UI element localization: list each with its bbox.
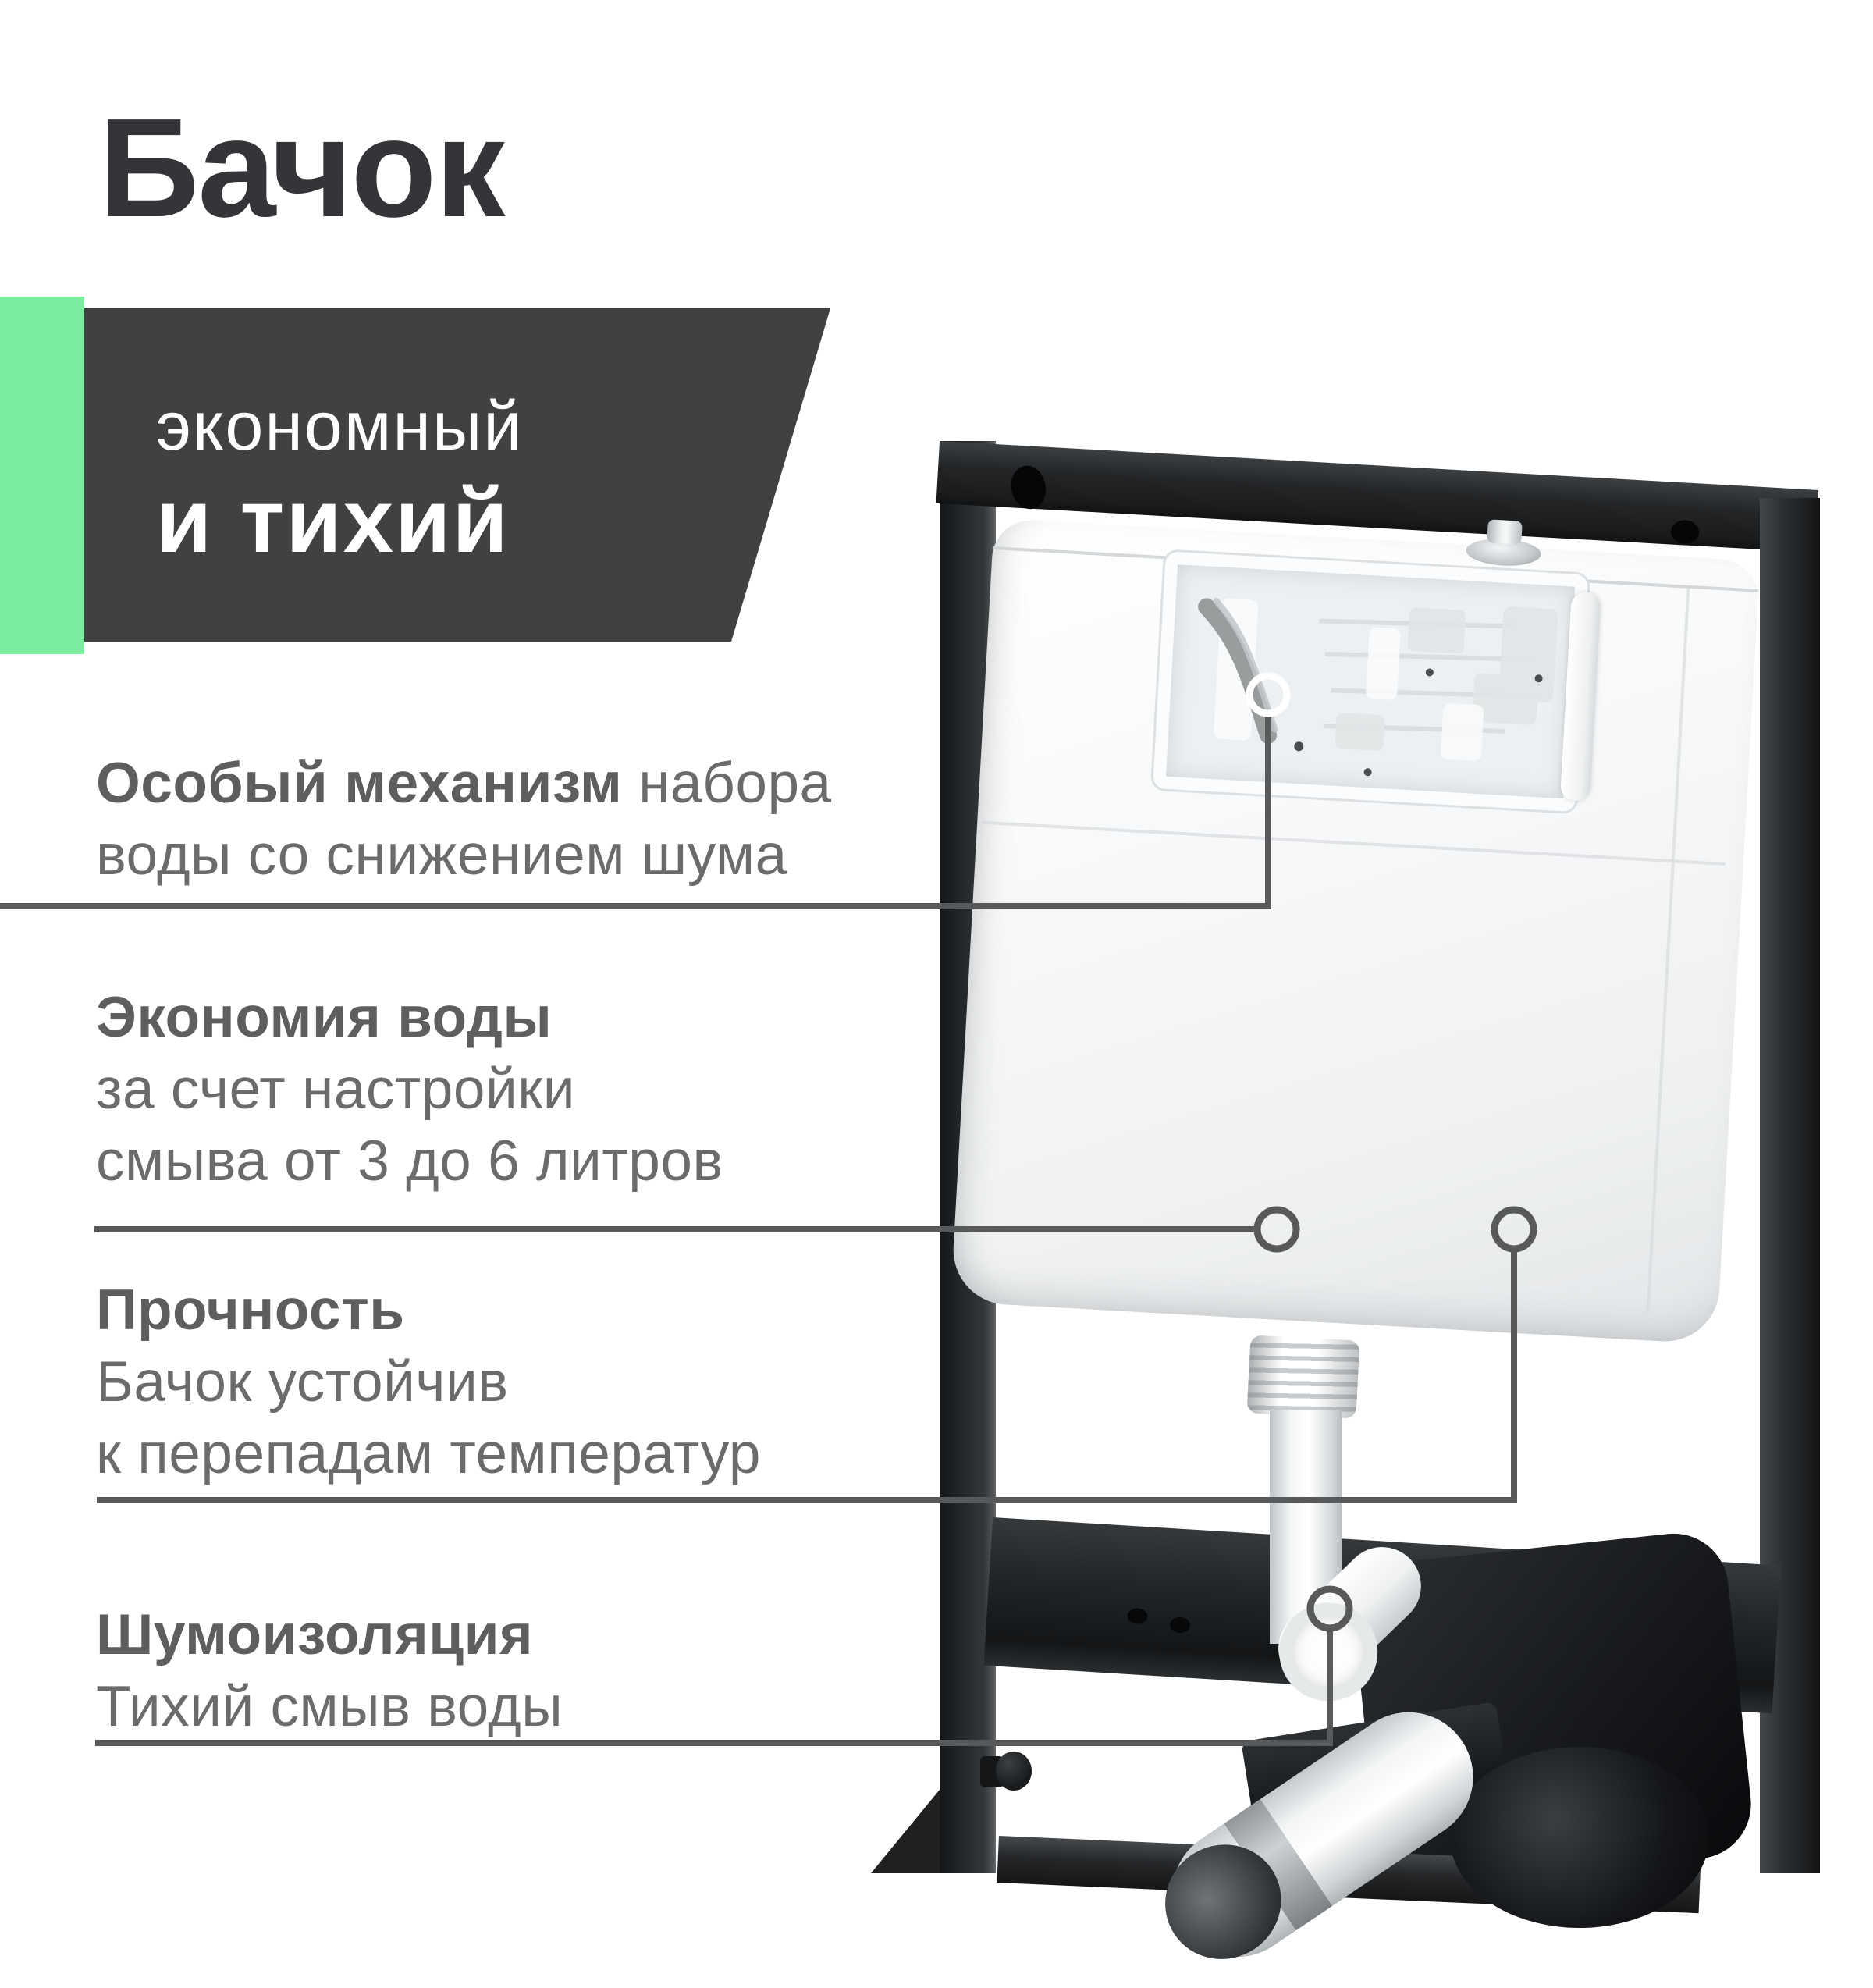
callout-line-mechanism <box>0 717 1268 906</box>
callout-circle-water-saving <box>1257 1210 1296 1249</box>
callout-circle-mechanism <box>1249 676 1287 713</box>
callout-line-noise <box>95 1631 1330 1743</box>
callout-layer <box>0 0 1873 1873</box>
callout-circle-durability <box>1494 1210 1534 1249</box>
callout-line-durability <box>97 1252 1514 1500</box>
callout-circle-noise <box>1310 1589 1349 1628</box>
